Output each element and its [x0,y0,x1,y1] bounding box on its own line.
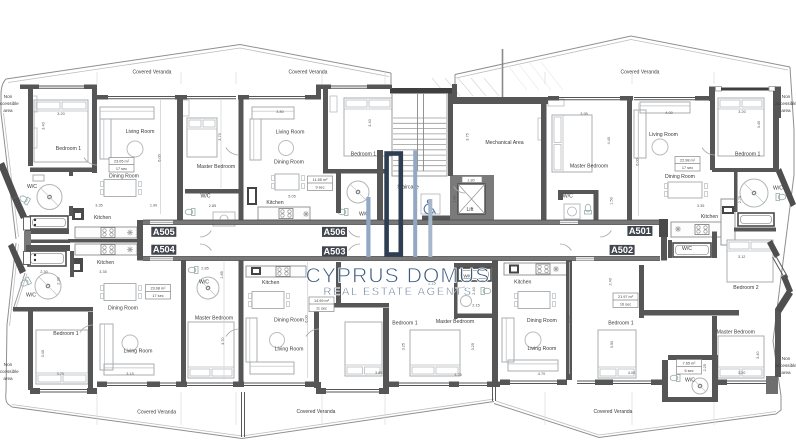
svg-text:4.00: 4.00 [665,111,672,115]
svg-text:Bedroom 1: Bedroom 1 [735,152,760,158]
svg-text:Bedroom 2: Bedroom 2 [733,285,758,291]
svg-text:CYPRUS DOMUS: CYPRUS DOMUS [306,265,491,288]
svg-text:Living Room: Living Room [527,346,556,352]
svg-text:6 sec: 6 sec [684,369,693,373]
svg-text:3.70: 3.70 [221,338,225,345]
svg-text:W/C: W/C [563,194,573,200]
svg-text:Non: Non [782,356,791,361]
svg-text:REAL ESTATE AGENTS: REAL ESTATE AGENTS [323,286,472,298]
svg-text:Non: Non [4,94,13,99]
svg-text:11 sec: 11 sec [316,307,327,311]
svg-text:3.20: 3.20 [738,110,745,114]
svg-text:Living Room: Living Room [124,349,153,355]
svg-text:area: area [781,108,791,113]
svg-text:Master Bedroom: Master Bedroom [195,316,233,322]
svg-text:Living Room: Living Room [276,130,305,136]
svg-text:Covered Veranda: Covered Veranda [297,409,336,415]
svg-text:Master Bedroom: Master Bedroom [570,164,608,170]
svg-text:Covered Veranda: Covered Veranda [289,70,328,76]
svg-text:area: area [3,108,13,113]
svg-text:Non: Non [4,362,13,367]
svg-text:Lift: Lift [467,207,474,213]
svg-text:W/C: W/C [685,378,695,384]
svg-text:A505: A505 [153,227,175,237]
svg-text:23.08 m²: 23.08 m² [151,287,167,291]
svg-text:2.25: 2.25 [703,364,707,371]
svg-text:Living Room: Living Room [126,129,155,135]
svg-text:1.90: 1.90 [150,204,157,208]
svg-text:Covered Veranda: Covered Veranda [621,70,660,76]
svg-text:Dining Room: Dining Room [108,306,138,312]
svg-text:W/C: W/C [773,186,783,192]
svg-text:6.00: 6.00 [158,154,162,161]
svg-text:21.97 m²: 21.97 m² [618,295,634,299]
svg-text:3.25: 3.25 [471,343,475,350]
svg-text:3.35: 3.35 [99,270,106,274]
svg-text:area: area [781,370,791,375]
svg-text:A503: A503 [324,246,346,256]
svg-text:accessible: accessible [775,363,796,368]
svg-text:3.20: 3.20 [738,371,745,375]
svg-text:3.40: 3.40 [368,119,372,126]
svg-text:Bedroom 1: Bedroom 1 [56,146,81,152]
svg-text:accessible: accessible [0,369,19,374]
svg-text:Bedroom 1: Bedroom 1 [351,152,376,158]
svg-text:Living Room: Living Room [275,347,304,353]
svg-text:3.40: 3.40 [41,350,45,357]
svg-text:Covered Veranda: Covered Veranda [133,70,172,76]
svg-text:1.80: 1.80 [467,179,474,183]
svg-text:2.85: 2.85 [201,267,208,271]
svg-text:area: area [3,376,13,381]
svg-text:W/C: W/C [26,293,36,299]
svg-text:A502: A502 [611,245,633,255]
svg-text:Kitchen: Kitchen [266,200,283,206]
svg-text:2.30: 2.30 [40,270,47,274]
svg-text:Dining Room: Dining Room [274,160,304,166]
svg-text:4.00: 4.00 [628,371,635,375]
svg-text:3.35: 3.35 [697,204,704,208]
svg-text:3.80: 3.80 [276,110,283,114]
svg-text:Master Bedroom: Master Bedroom [717,330,755,336]
svg-text:6.00: 6.00 [566,315,570,322]
svg-text:3.25: 3.25 [402,343,406,350]
svg-text:3.40: 3.40 [756,352,760,359]
svg-text:Kitchen: Kitchen [701,214,718,220]
svg-text:accessible: accessible [775,101,796,106]
svg-text:Living Room: Living Room [649,132,678,138]
svg-text:3.12: 3.12 [738,255,745,259]
svg-text:Dining Room: Dining Room [527,318,557,324]
svg-text:3.75: 3.75 [218,133,222,140]
svg-text:2.40: 2.40 [609,278,613,285]
svg-text:2.40: 2.40 [472,287,476,294]
svg-text:3.20: 3.20 [57,372,64,376]
svg-text:1.65: 1.65 [220,271,224,278]
svg-text:2.15: 2.15 [472,304,479,308]
svg-text:1.50: 1.50 [610,197,614,204]
svg-text:3.40: 3.40 [757,121,761,128]
svg-text:3.40: 3.40 [42,122,46,129]
svg-text:2.85: 2.85 [209,204,216,208]
svg-text:9 sec: 9 sec [315,186,324,190]
svg-text:W/C: W/C [682,246,692,252]
svg-text:Dining Room: Dining Room [665,174,695,180]
svg-text:2.30: 2.30 [56,277,60,284]
svg-text:2.75: 2.75 [738,196,742,203]
svg-text:7.65 m²: 7.65 m² [683,362,697,366]
svg-text:Covered Veranda: Covered Veranda [594,409,633,415]
svg-text:3.85: 3.85 [375,371,382,375]
svg-text:Kitchen: Kitchen [262,280,279,286]
svg-text:3.20: 3.20 [57,112,64,116]
svg-text:6.00: 6.00 [636,158,640,165]
svg-text:3.35: 3.35 [95,204,102,208]
svg-text:Mechanical Area: Mechanical Area [485,140,523,146]
svg-text:16 sec: 16 sec [620,303,631,307]
svg-text:Bedroom 1: Bedroom 1 [392,321,417,327]
svg-text:Non: Non [782,94,791,99]
svg-text:Kitchen: Kitchen [514,280,531,286]
svg-text:3.50: 3.50 [610,341,614,348]
svg-text:1.80: 1.80 [453,195,457,202]
svg-text:6.00: 6.00 [305,315,309,322]
svg-text:Kitchen: Kitchen [94,215,111,221]
svg-text:17 sec: 17 sec [152,294,163,298]
svg-text:Master Bedroom: Master Bedroom [197,164,235,170]
svg-text:14.99 m²: 14.99 m² [314,299,330,303]
svg-text:A504: A504 [153,245,176,255]
svg-text:W/C: W/C [27,184,37,190]
svg-text:W/C: W/C [199,280,209,286]
svg-text:Bedroom 1: Bedroom 1 [608,320,633,326]
svg-text:A501: A501 [629,226,651,236]
svg-text:4.70: 4.70 [538,372,545,376]
svg-text:Dining Room: Dining Room [274,317,304,323]
svg-text:A506: A506 [324,227,346,237]
svg-text:3.25: 3.25 [454,373,461,377]
svg-text:Master Bedroom: Master Bedroom [436,319,474,325]
svg-text:Bedroom 1: Bedroom 1 [53,331,78,337]
svg-text:3.15: 3.15 [126,372,133,376]
svg-text:11.55 m²: 11.55 m² [313,178,328,182]
svg-text:Covered Veranda: Covered Veranda [137,410,176,416]
svg-text:W/C: W/C [200,194,210,200]
svg-text:5.05: 5.05 [288,195,295,199]
svg-text:Kitchen: Kitchen [97,260,114,266]
svg-text:accessible: accessible [0,101,19,106]
svg-text:23.05 m²: 23.05 m² [114,160,130,164]
svg-text:17 sec: 17 sec [116,167,127,171]
svg-text:3.75: 3.75 [466,133,470,140]
svg-text:3.95: 3.95 [580,112,587,116]
svg-text:4.40: 4.40 [607,137,611,144]
svg-text:Dining Room: Dining Room [109,174,139,180]
svg-text:17 sec: 17 sec [682,166,693,170]
svg-text:22.98 m²: 22.98 m² [680,159,696,163]
